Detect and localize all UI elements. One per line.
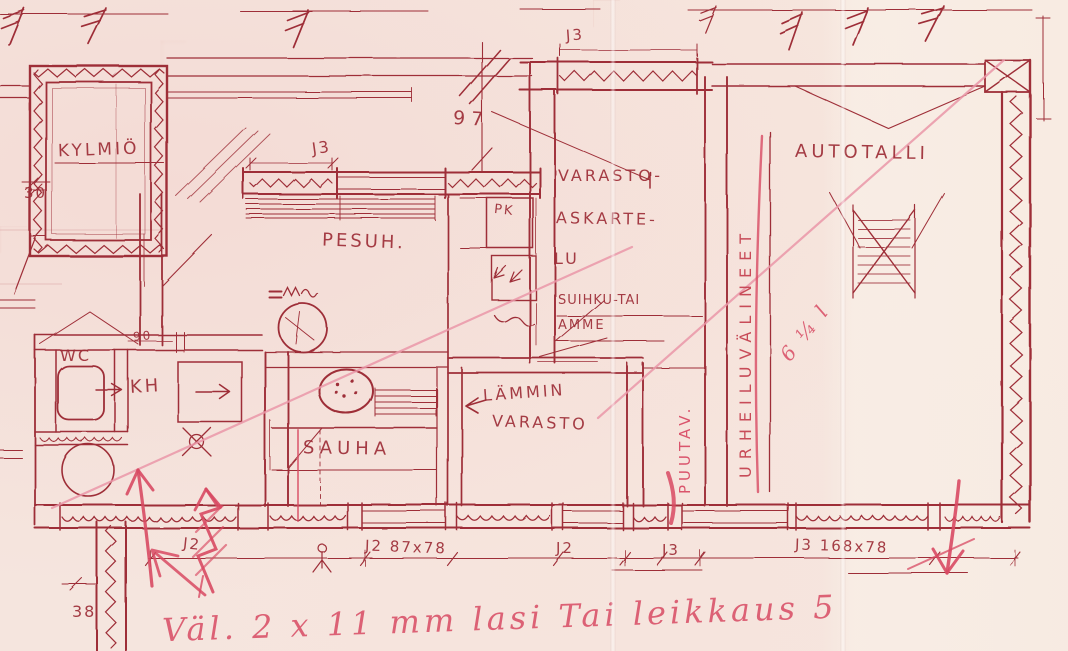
- pesuh-west-wall: [140, 194, 212, 345]
- dim-j2-mid: J2 87x78: [365, 539, 447, 558]
- dim-j2-left: J2: [182, 536, 202, 554]
- room-label-varasto-line3: LU: [554, 251, 580, 268]
- room-label-varasto-line1: VARASTO-: [558, 168, 663, 185]
- floor-plan-sheet: KYLMIÖ 30 J3 97 J3 PESUH. PK VARASTO- AS…: [0, 0, 1068, 651]
- dim-window-top: 97: [453, 109, 490, 131]
- dim-j3-varasto-window: J3: [565, 27, 584, 44]
- room-label-varasto-line2: ASKARTE-: [556, 210, 658, 229]
- room-label-kylmio: KYLMIÖ: [58, 141, 140, 162]
- floor-plan-drawing: [0, 0, 1068, 651]
- dim-j3-pesuh-window: J3: [311, 139, 332, 158]
- room-label-sauna: SAUHA: [303, 439, 391, 459]
- room-label-kh: KH: [130, 377, 162, 398]
- label-urheiluvalineet: URHEILUVÄLINEET: [738, 227, 755, 478]
- bottom-wall: [35, 503, 1030, 530]
- dim-corner-bottom: 38: [72, 604, 96, 621]
- label-suihku-line2: AMME: [558, 319, 606, 333]
- room-label-pesuh: PESUH.: [322, 232, 406, 254]
- room-autotalli: [712, 60, 1030, 522]
- room-label-lammin-line2: VARASTO: [492, 413, 588, 433]
- dim-j2-right: J2: [556, 541, 574, 557]
- dim-left-wall: 30: [24, 186, 47, 202]
- room-label-autotalli: AUTOTALLI: [795, 143, 929, 164]
- dim-j3-bottom: J3: [662, 543, 680, 559]
- room-sauna: [265, 352, 448, 506]
- room-label-wc: WC: [60, 348, 91, 365]
- bottom-dimension-line: [145, 544, 1020, 573]
- dim-j3-garage: J3 168x78: [795, 537, 889, 556]
- closet-label-pk: PK: [493, 203, 515, 219]
- label-suihku-line1: SUIHKU-TAI: [558, 294, 640, 308]
- label-puutavara: PUUTAV.: [678, 405, 694, 494]
- dim-door-wc: 90: [132, 329, 152, 343]
